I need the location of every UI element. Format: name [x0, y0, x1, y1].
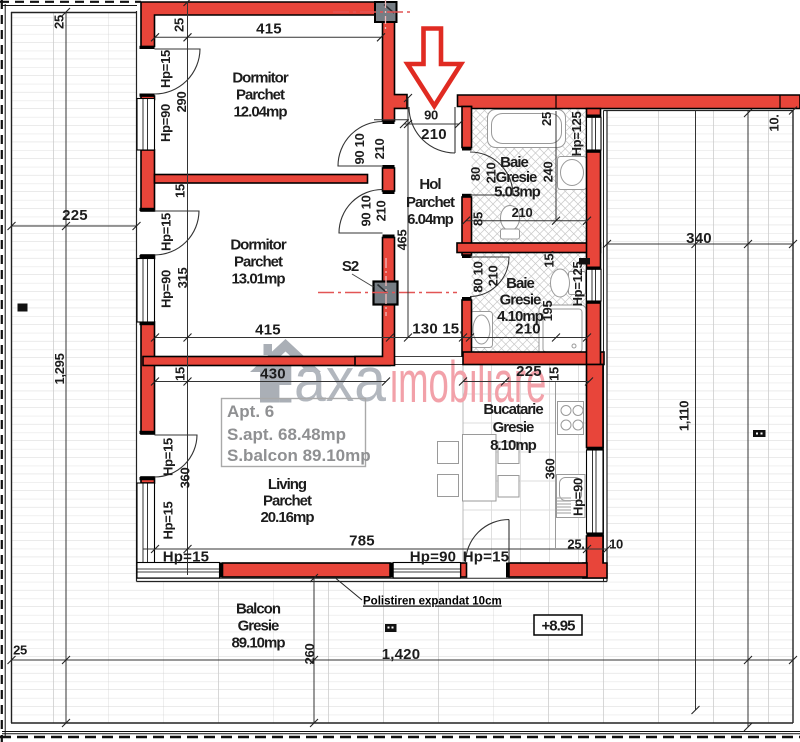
svg-text:Parchet: Parchet	[234, 254, 283, 271]
svg-text:Hp=15: Hp=15	[158, 50, 173, 88]
svg-text:225: 225	[62, 207, 88, 224]
svg-text:Parchet: Parchet	[406, 194, 455, 211]
svg-text:1,110: 1,110	[677, 401, 692, 431]
svg-text:10: 10	[609, 537, 623, 552]
svg-text:13.01mp: 13.01mp	[231, 271, 285, 288]
svg-text:25: 25	[172, 18, 187, 32]
svg-text:6.04mp: 6.04mp	[407, 211, 454, 228]
svg-text:415: 415	[256, 21, 282, 38]
svg-text:15: 15	[173, 367, 188, 381]
svg-text:210: 210	[372, 139, 387, 160]
svg-text:465: 465	[395, 230, 410, 251]
svg-text:Hol: Hol	[419, 176, 441, 193]
svg-text:90: 90	[424, 108, 438, 123]
svg-text:1,420: 1,420	[382, 646, 421, 663]
svg-text:260: 260	[302, 644, 317, 665]
svg-text:210: 210	[512, 205, 533, 220]
svg-text:210: 210	[484, 163, 499, 184]
svg-text:Polistiren expandat 10cm: Polistiren expandat 10cm	[363, 596, 502, 608]
svg-text:430: 430	[260, 366, 286, 383]
svg-text:Balcon: Balcon	[236, 601, 281, 618]
svg-text:15: 15	[547, 367, 562, 381]
svg-text:Gresie: Gresie	[493, 419, 534, 436]
svg-text:15: 15	[173, 184, 188, 198]
svg-text:S2: S2	[342, 258, 359, 275]
svg-text:210: 210	[515, 321, 541, 338]
svg-text:290: 290	[174, 92, 189, 113]
svg-text:5.03mp: 5.03mp	[494, 184, 541, 201]
svg-text:Gresie: Gresie	[238, 618, 279, 635]
svg-text:210: 210	[374, 201, 389, 222]
svg-text:225: 225	[516, 363, 542, 380]
svg-text:25: 25	[539, 112, 554, 126]
svg-text:20.16mp: 20.16mp	[260, 509, 314, 526]
svg-text:360: 360	[178, 468, 193, 489]
svg-text:Hp=125: Hp=125	[570, 262, 585, 307]
svg-text:axa: axa	[294, 345, 387, 415]
svg-text:Hp=15: Hp=15	[463, 549, 509, 566]
svg-text:340: 340	[686, 230, 712, 247]
svg-text:Hp=15: Hp=15	[161, 501, 176, 539]
svg-text:785: 785	[349, 533, 375, 550]
svg-text:S.apt. 68.48mp: S.apt. 68.48mp	[227, 425, 346, 444]
svg-text:S.balcon 89.10mp: S.balcon 89.10mp	[227, 446, 371, 465]
svg-text:80 10: 80 10	[471, 261, 486, 292]
svg-text:Gresie: Gresie	[500, 292, 541, 309]
svg-text:210: 210	[421, 126, 447, 143]
svg-text:315: 315	[175, 268, 190, 289]
svg-text:415: 415	[255, 322, 281, 339]
svg-text:360: 360	[543, 459, 558, 480]
svg-text:210: 210	[486, 266, 501, 287]
svg-text:12.04mp: 12.04mp	[233, 104, 287, 121]
svg-text:85: 85	[471, 212, 486, 226]
svg-text:Parchet: Parchet	[263, 493, 312, 510]
svg-text:10.: 10.	[767, 114, 782, 131]
svg-text:Hp=15: Hp=15	[161, 438, 176, 476]
svg-text:Hp=90: Hp=90	[571, 478, 586, 516]
svg-text:Baie: Baie	[506, 275, 534, 292]
svg-text:25: 25	[13, 643, 27, 658]
svg-text:Living: Living	[268, 476, 307, 493]
svg-text:1,295: 1,295	[52, 353, 67, 384]
svg-text:Hp=125: Hp=125	[569, 112, 584, 157]
svg-text:80: 80	[468, 167, 483, 181]
svg-text:Hp=15: Hp=15	[163, 549, 209, 566]
svg-text:Hp=90: Hp=90	[159, 270, 174, 308]
svg-text:240: 240	[541, 162, 556, 183]
svg-text:25.: 25.	[567, 537, 584, 552]
svg-text:+8.95: +8.95	[542, 618, 576, 635]
svg-text:130 15.: 130 15.	[412, 321, 463, 338]
svg-text:Parchet: Parchet	[236, 87, 285, 104]
svg-text:Hp=15: Hp=15	[159, 213, 174, 251]
svg-text:Hp=90: Hp=90	[410, 549, 456, 566]
svg-text:90 10: 90 10	[359, 195, 374, 226]
svg-text:89.10mp: 89.10mp	[231, 635, 285, 652]
svg-text:25: 25	[52, 15, 67, 29]
svg-text:8.10mp: 8.10mp	[490, 437, 537, 454]
svg-text:195: 195	[540, 301, 555, 322]
svg-text:90 10: 90 10	[352, 133, 367, 164]
svg-text:Hp=90: Hp=90	[158, 104, 173, 142]
svg-text:15.: 15.	[542, 250, 557, 267]
svg-text:Dormitor: Dormitor	[230, 237, 286, 254]
svg-text:Dormitor: Dormitor	[232, 70, 288, 87]
svg-text:Bucatarie: Bucatarie	[483, 401, 543, 418]
svg-text:Apt. 6: Apt. 6	[227, 402, 274, 421]
